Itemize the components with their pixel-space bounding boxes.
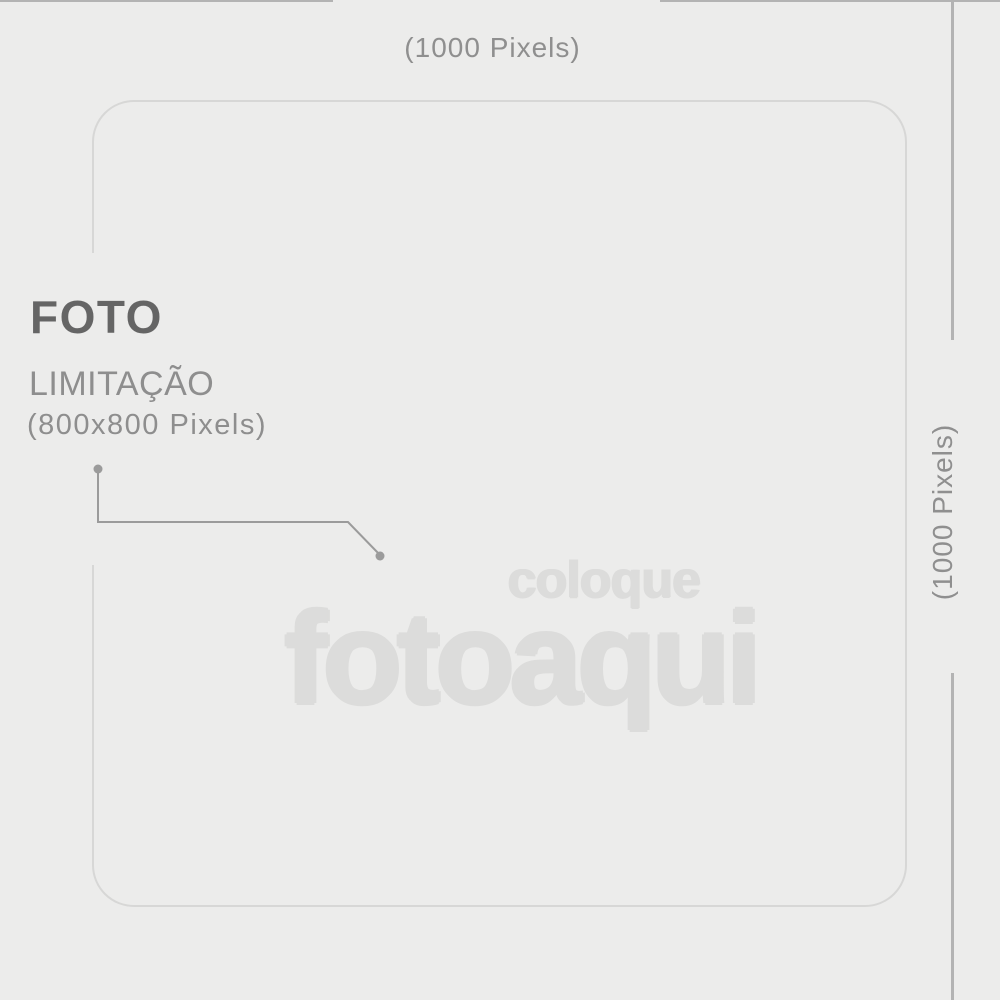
top-dimension-line-left [0,0,333,2]
photo-placeholder-area[interactable] [92,100,907,907]
top-dimension-label: (1000 Pixels) [0,32,985,64]
right-dimension-line-bottom [951,673,954,1000]
watermark-fotoaqui: fotoaqui [284,593,757,723]
template-canvas: (1000 Pixels) (1000 Pixels) FOTO LIMITAÇ… [0,0,1000,1000]
top-dimension-line-right [660,0,1000,2]
right-dimension-label: (1000 Pixels) [928,412,958,612]
right-dimension-line-top [951,0,954,340]
limitation-label: LIMITAÇÃO [29,367,214,401]
photo-label: FOTO [30,294,163,340]
size-limit-label: (800x800 Pixels) [27,411,267,440]
